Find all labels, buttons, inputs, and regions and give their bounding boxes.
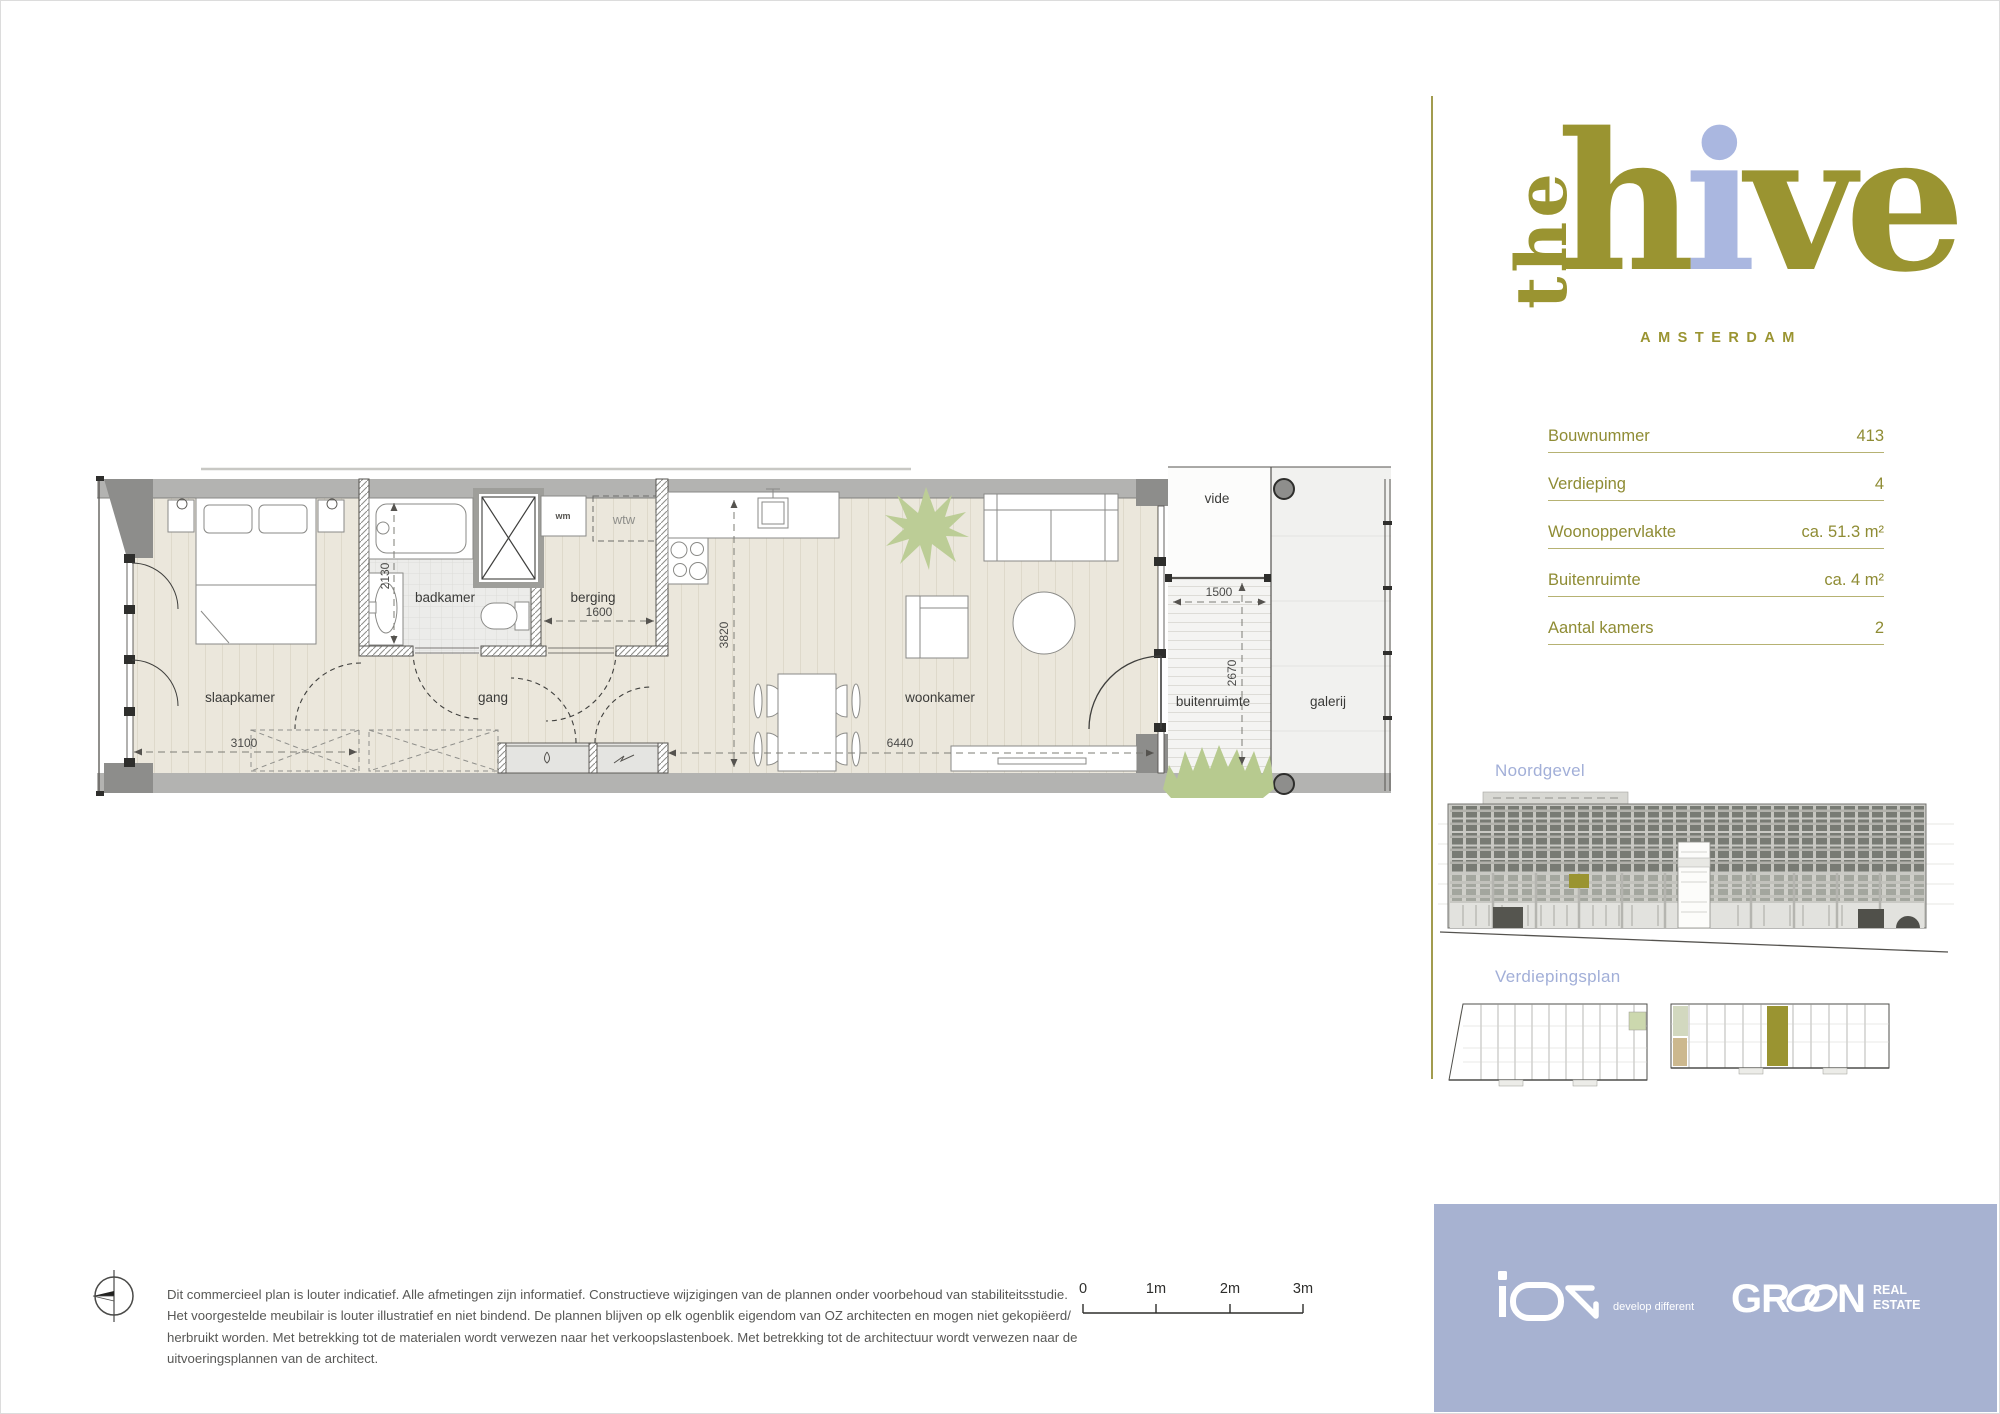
- spec-table: Bouwnummer413 Verdieping4 Woonoppervlakt…: [1548, 405, 1884, 645]
- scale-label: 2m: [1220, 1281, 1240, 1297]
- void-area: [1168, 467, 1271, 578]
- spec-row: Verdieping4: [1548, 453, 1884, 501]
- coffee-table: [1013, 592, 1075, 654]
- floorplan: wm wtw: [89, 449, 1399, 809]
- brochure-page: wm wtw: [0, 0, 2000, 1414]
- room-label-living: woonkamer: [904, 690, 975, 705]
- room-label-storage: berging: [570, 590, 615, 605]
- spec-row: Bouwnummer413: [1548, 405, 1884, 453]
- room-label-outdoor: buitenruimte: [1176, 694, 1250, 709]
- floor-overview-plan: [1441, 996, 1911, 1096]
- scale-label: 0: [1079, 1281, 1087, 1297]
- dim-living: 6440: [887, 736, 914, 750]
- disclaimer-line: herbruikt worden. Met betrekking tot de …: [167, 1327, 1077, 1348]
- sofa: [984, 494, 1118, 561]
- logo-city: AMSTERDAM: [1541, 330, 1901, 346]
- green-real: REAL: [1873, 1283, 1907, 1297]
- column: [1274, 479, 1294, 499]
- room-label-gallery: galerij: [1310, 694, 1346, 709]
- disclaimer-line: uitvoeringsplannen van de architect.: [167, 1348, 1077, 1369]
- gallery-floor: [1271, 467, 1391, 773]
- spec-row: Aantal kamers2: [1548, 597, 1884, 645]
- disclaimer-line: Dit commercieel plan is louter indicatie…: [167, 1284, 1077, 1305]
- spec-row: Buitenruimteca. 4 m²: [1548, 549, 1884, 597]
- dim-bathroom: 2130: [378, 562, 392, 589]
- ion-logo: [1496, 1269, 1756, 1324]
- column: [1274, 774, 1294, 794]
- ion-tagline: develop different: [1613, 1301, 1694, 1313]
- spec-row: Woonoppervlakteca. 51.3 m²: [1548, 501, 1884, 549]
- dim-storage: 1600: [586, 605, 613, 619]
- footer-brand-block: develop different GR N REAL ESTATE: [1434, 1204, 1997, 1412]
- dim-depth: 3820: [717, 621, 731, 648]
- bathtub: [369, 498, 473, 559]
- highlighted-unit-plan: [1767, 1006, 1788, 1066]
- green-gr: GR: [1731, 1277, 1790, 1321]
- section-label-floor-overview: Verdiepingsplan: [1495, 967, 1620, 987]
- room-label-hallway: gang: [478, 690, 508, 705]
- sidebar-divider: [1431, 96, 1433, 1079]
- dim-terrace-w: 1500: [1206, 585, 1233, 599]
- green-real-estate-logo: GR N REAL ESTATE: [1731, 1276, 1931, 1321]
- scale-label: 3m: [1293, 1281, 1313, 1297]
- logo-hive: hive: [1557, 108, 1955, 298]
- heat-unit-label: wtw: [612, 512, 636, 527]
- scale-label: 1m: [1146, 1281, 1166, 1297]
- north-arrow-icon: [87, 1267, 143, 1325]
- room-label-bathroom: badkamer: [415, 590, 476, 605]
- toilet: [481, 602, 529, 630]
- disclaimer-line: Het voorgestelde meubilair is louter ill…: [167, 1305, 1077, 1326]
- room-label-void: vide: [1205, 491, 1230, 506]
- highlighted-unit-elevation: [1569, 874, 1589, 888]
- dim-terrace-d: 2670: [1225, 659, 1239, 686]
- room-label-bedroom: slaapkamer: [205, 690, 275, 705]
- scale-bar: 0 1m 2m 3m: [1073, 1277, 1313, 1322]
- washer-label: wm: [554, 511, 570, 521]
- dim-bedroom: 3100: [231, 736, 258, 750]
- sideboard: [951, 746, 1137, 771]
- green-estate: ESTATE: [1873, 1298, 1920, 1312]
- section-label-facade: Noordgevel: [1495, 761, 1585, 781]
- building-elevation: [1438, 786, 1954, 961]
- green-n: N: [1837, 1277, 1866, 1321]
- armchair: [906, 596, 968, 658]
- utility-closets: [506, 743, 658, 773]
- elevator-shaft: [476, 491, 541, 585]
- disclaimer-text: Dit commercieel plan is louter indicatie…: [167, 1284, 1077, 1370]
